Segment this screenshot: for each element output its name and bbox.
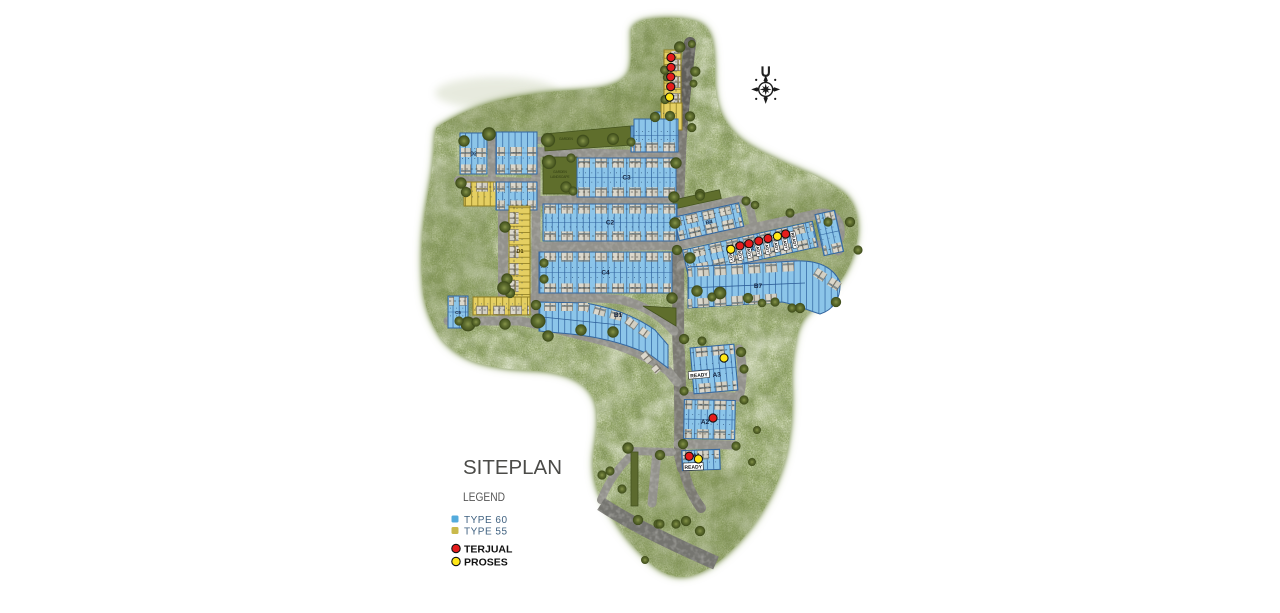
svg-text:PROSES: PROSES [464,557,508,569]
svg-text:TERJUAL: TERJUAL [464,544,513,556]
svg-text:GARDEN: GARDEN [553,170,567,174]
svg-text:A3: A3 [712,371,721,379]
svg-text:LEGEND: LEGEND [463,492,505,504]
svg-text:READY: READY [684,464,702,471]
svg-text:B1: B1 [614,312,623,319]
svg-text:SITEPLAN: SITEPLAN [463,456,562,479]
svg-text:C3: C3 [622,175,631,182]
svg-text:B7: B7 [754,283,763,290]
svg-text:A2: A2 [701,419,710,426]
svg-text:D1: D1 [516,249,523,255]
svg-text:LANDSCAPE: LANDSCAPE [550,175,569,179]
svg-text:C2: C2 [606,220,615,227]
svg-text:C4: C4 [601,270,610,277]
svg-text:TYPE 55: TYPE 55 [464,527,508,538]
svg-text:TYPE 60: TYPE 60 [464,515,508,526]
svg-text:C5: C5 [455,310,461,315]
svg-text:GARDEN: GARDEN [559,137,573,141]
